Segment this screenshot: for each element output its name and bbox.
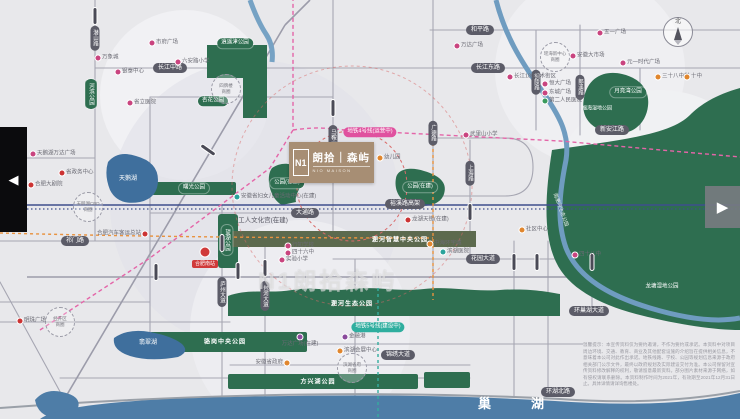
poi-label: 安徽大市场 [577, 53, 605, 59]
poi-dot [176, 60, 181, 65]
compass-north-label: 北 [664, 18, 692, 26]
project-name: 朗拾｜森屿 [313, 152, 371, 164]
poi-dot [621, 61, 626, 66]
poi-label: 龙湖天街(在建) [412, 217, 449, 223]
poi-dot [338, 349, 343, 354]
business-circle-label: 经开区 商圈 [45, 307, 75, 337]
project-logo-mark: N1 [293, 149, 309, 176]
park-label-pill: 曙光公园 [179, 183, 209, 193]
poi-label: 省政务中心 [66, 170, 94, 176]
compass: 北 [663, 17, 693, 47]
poi-label: 四十六中 [292, 250, 314, 256]
poi-dot [428, 242, 433, 247]
map-text-label: 福海湿地公园 [582, 107, 612, 112]
road-pill-vertical: 广德路 [428, 121, 437, 146]
poi-dot [18, 319, 23, 324]
poi-label: 行知学校 [292, 243, 314, 249]
poi-label: 恒大广场 [549, 81, 571, 87]
poi-dot [31, 152, 36, 157]
park-label-pill: 公园(在建) [403, 182, 437, 192]
poi-dot [235, 195, 240, 200]
poi-dot [543, 99, 548, 104]
poi-dot [128, 101, 133, 106]
road-pill: 锦绣大道 [381, 350, 415, 360]
compass-needle-icon [674, 27, 682, 40]
business-circle-label: 滨湖省府 商圈 [337, 353, 367, 383]
poi-dot [285, 361, 290, 366]
poi-dot [464, 133, 469, 138]
poi-label: 金融港 [349, 334, 366, 340]
poi-label: 武里山小学 [470, 132, 498, 138]
poi-dot [298, 335, 303, 340]
park-label-pill: 月亮湾公园 [610, 87, 646, 97]
metro-station-icon [468, 203, 473, 221]
poi-dot [406, 218, 411, 223]
metro-line-pill: 地铁5号线(建设中) [351, 322, 404, 332]
park-band-label: 淝河智慧中央公园 [372, 235, 428, 244]
metro-line-pill: 地铁4号线(运营中) [343, 127, 396, 137]
poi-label: 社区中心 [526, 227, 548, 233]
carousel-prev-button[interactable]: ◀ [0, 127, 27, 232]
poi-dot [598, 31, 603, 36]
metro-station-icon [535, 253, 540, 271]
poi-label: 幼儿园 [384, 155, 401, 161]
poi-label: 五一广场 [604, 30, 626, 36]
rail-station-badge-icon [200, 247, 211, 258]
disclaimer-text: 温馨提示：本宣传资料仅为要约邀请，不作为要约或承诺。本资料中对项目周边环境、交通… [583, 342, 735, 390]
poi-label: 中海环宇城 [434, 241, 462, 247]
poi-dot [455, 44, 460, 49]
road-pill-vertical: 上海路 [465, 161, 474, 186]
business-circle-label: 天鹅湖CBD 商圈 [73, 192, 103, 222]
map-lightbox: N1 朗拾｜森屿 NIO MAISON 北 N1朗拾森屿 温馨提示：本宣传资料仅… [0, 0, 740, 419]
poi-dot [286, 251, 291, 256]
poi-dot [143, 232, 148, 237]
poi-dot [378, 156, 383, 161]
map-text-label: 工人文化宫(在建) [238, 218, 288, 225]
poi-label: 天鹅湖万达广场 [37, 151, 76, 157]
poi-dot [571, 54, 576, 59]
road-pill-vertical: 潜山路 [90, 26, 99, 51]
map-text-label: 天鹅湖 [119, 176, 137, 182]
map-text-label: 翡翠湖 [139, 340, 157, 346]
metro-station-icon [236, 262, 241, 280]
poi-dot [286, 244, 291, 249]
poi-dot [343, 335, 348, 340]
road-pill: 和平路 [466, 25, 494, 35]
poi-dot [543, 82, 548, 87]
park-band-label: 方兴湖公园 [300, 377, 335, 386]
park-label-pill: 逍遥津公园 [217, 38, 253, 48]
poi-dot [96, 56, 101, 61]
poi-label: 六安路小学 [182, 59, 210, 65]
metro-station-icon [154, 263, 159, 281]
poi-label: 万达广场 [461, 43, 483, 49]
poi-dot [543, 91, 548, 96]
arrow-left-icon: ◀ [9, 172, 19, 188]
poi-label: 合肥汽车客运总站 [97, 231, 141, 237]
map-text-label: 龙塘湿地公园 [645, 284, 678, 290]
lake-name-label: 巢湖 [478, 393, 584, 412]
poi-label: 银泰中心 [122, 69, 144, 75]
poi-label: 万达广场(在建) [282, 342, 319, 348]
poi-label: 省立医院 [134, 100, 156, 106]
road-pill-vertical: 庐州大道 [217, 277, 226, 307]
carousel-next-button[interactable]: ▶ [705, 186, 740, 228]
poi-dot [29, 183, 34, 188]
poi-dot [520, 228, 525, 233]
poi-label: 合肥大剧院 [35, 182, 63, 188]
metro-station-icon [331, 99, 336, 117]
project-name-en: NIO MAISON [313, 166, 371, 174]
metro-station-icon [220, 234, 225, 252]
poi-dot [441, 250, 446, 255]
poi-label: 安徽省政府 [255, 360, 283, 366]
poi-dot [573, 253, 578, 258]
road-pill: 祁门路 [61, 236, 89, 246]
poi-label: 四十八中 [579, 252, 601, 258]
poi-dot [150, 41, 155, 46]
arrow-right-icon: ▶ [717, 198, 729, 216]
business-circle-label: 瑶海新中心 商圈 [540, 42, 570, 72]
poi-label: 长江180艺术街区 [514, 74, 556, 80]
park-label-pill: 河滨公园 [86, 79, 97, 109]
poi-dot [60, 171, 65, 176]
poi-label: 明珠广场 [24, 318, 46, 324]
road-pill-vertical: 郎溪路 [575, 75, 584, 100]
road-pill: 大通路 [291, 208, 319, 218]
park-band-label: 淝河生态公园 [331, 299, 373, 308]
metro-station-icon [512, 253, 517, 271]
poi-label: 滨湖医院 [447, 249, 469, 255]
metro-station-icon [93, 7, 98, 25]
poi-dot [685, 75, 690, 80]
road-pill: 花园大道 [466, 254, 500, 264]
rail-station-badge-label: 合肥南站 [192, 260, 218, 268]
poi-dot [116, 70, 121, 75]
poi-label: 东城广场 [549, 90, 571, 96]
business-circle-label: 四牌楼 商圈 [211, 74, 241, 104]
poi-label: 十中 [691, 74, 702, 80]
project-logo: N1 朗拾｜森屿 NIO MAISON [289, 142, 374, 183]
poi-label: 第二人民医院 [549, 98, 582, 104]
poi-label: 市府广场 [156, 40, 178, 46]
poi-dot [656, 75, 661, 80]
road-pill: 裕溪路高架 [385, 199, 425, 209]
poi-dot [508, 75, 513, 80]
poi-label: 滨湖会展中心 [344, 348, 377, 354]
poi-label: 万象城 [102, 55, 119, 61]
road-pill: 长江东路 [471, 63, 505, 73]
poi-label: 元一时代广场 [627, 60, 660, 66]
poi-label: 安徽省妇女儿童活动中心(在建) [241, 194, 316, 200]
road-pill: 环巢湖大道 [569, 306, 609, 316]
park-band-label: 骆岗中央公园 [204, 337, 246, 346]
watermark: N1朗拾森屿 [258, 262, 397, 296]
road-pill: 新安江路 [595, 125, 629, 135]
